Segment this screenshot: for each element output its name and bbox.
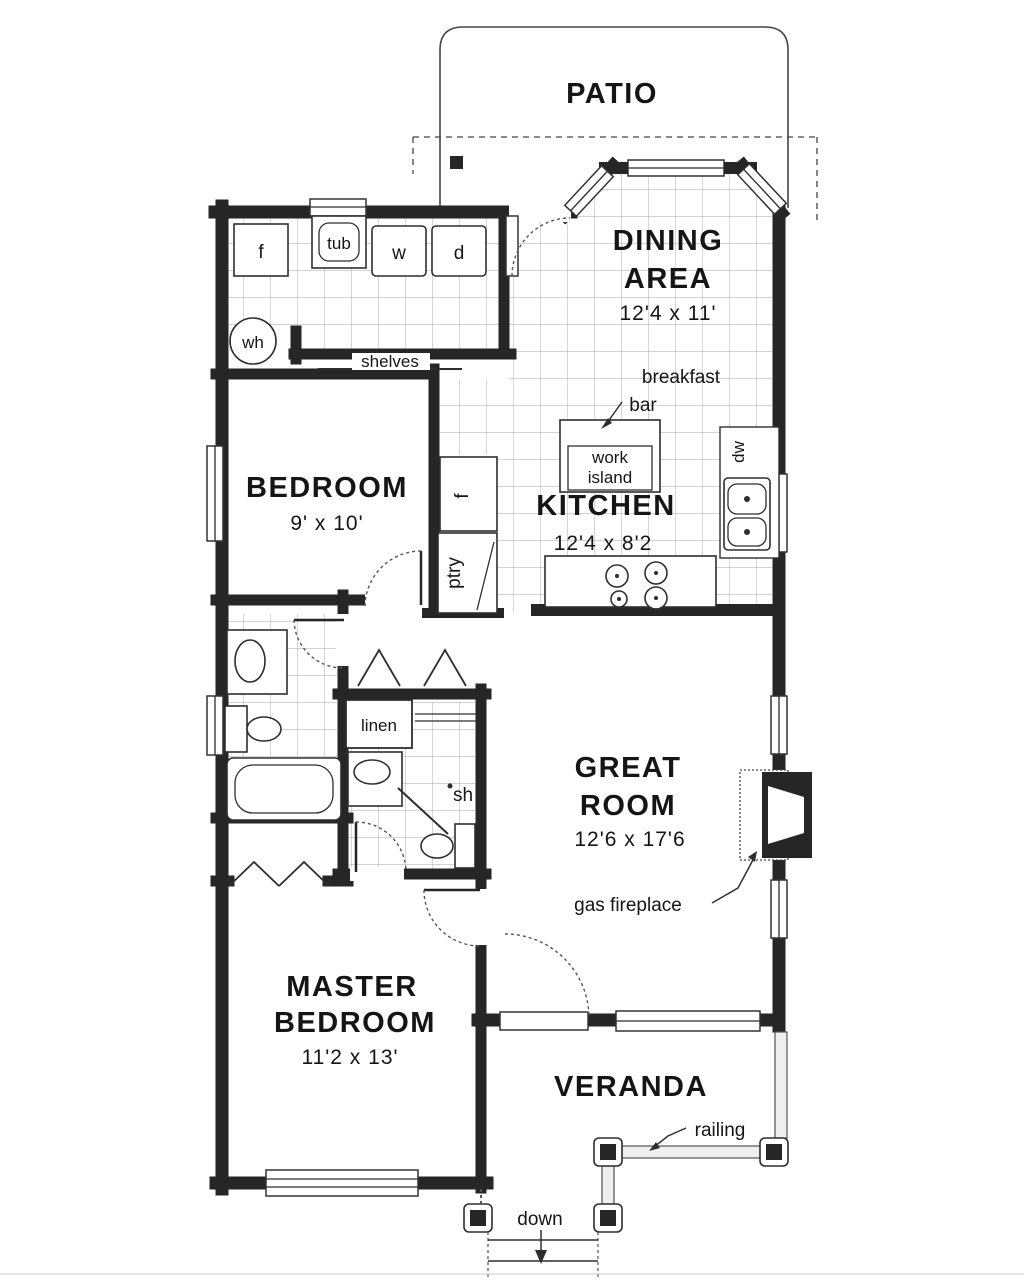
post-1-inner <box>600 1144 616 1160</box>
floor-plan-page: PATIO <box>0 0 1024 1280</box>
laundry-tub-label: tub <box>327 234 351 253</box>
room-dims-bedroom: 9' x 10' <box>290 512 363 535</box>
shower-head-dot <box>448 784 453 789</box>
room-label-bedroom: BEDROOM <box>246 472 408 504</box>
room-label-greatroom-2: ROOM <box>580 790 676 822</box>
fireplace <box>740 770 812 860</box>
pantry-label: ptry <box>444 557 465 589</box>
bath1-door-opening <box>336 614 350 666</box>
bath1-toilet-tank <box>225 706 247 752</box>
room-label-master-2: BEDROOM <box>274 1007 436 1039</box>
range-box <box>545 556 716 607</box>
patio-post-marker <box>450 156 463 169</box>
bath2-sink <box>354 760 390 784</box>
water-heater-label: wh <box>241 333 264 352</box>
room-label-master-1: MASTER <box>286 971 417 1003</box>
linen-label: linen <box>361 716 397 735</box>
bath1-sink <box>235 640 265 682</box>
room-label-dining-2: AREA <box>624 263 712 295</box>
burner-3-dot <box>617 597 621 601</box>
burner-2-dot <box>654 571 658 575</box>
background <box>0 0 1024 1280</box>
bath2-door-opening <box>350 867 404 881</box>
burner-1-dot <box>615 574 619 578</box>
work-island-label-2: island <box>588 468 632 487</box>
down-label: down <box>517 1209 562 1230</box>
shelves-label: shelves <box>361 352 419 371</box>
breakfast-bar-label-2: bar <box>629 395 657 416</box>
post-3-inner <box>470 1210 486 1226</box>
sink-drain-1 <box>744 496 750 502</box>
railing-right <box>775 1032 787 1138</box>
room-label-greatroom-1: GREAT <box>575 752 682 784</box>
breakfast-bar-label-1: breakfast <box>642 367 721 388</box>
gas-fireplace-label: gas fireplace <box>574 895 682 916</box>
room-label-kitchen: KITCHEN <box>536 490 675 522</box>
room-dims-dining: 12'4 x 11' <box>619 302 716 325</box>
veranda-door-leaf <box>500 1012 588 1030</box>
room-dims-master: 11'2 x 13' <box>301 1046 398 1069</box>
burner-4-dot <box>654 596 658 600</box>
window-master-bedroom <box>266 1170 418 1196</box>
room-dims-kitchen: 12'4 x 8'2 <box>554 532 653 555</box>
shower-label: sh <box>453 785 473 806</box>
room-label-veranda: VERANDA <box>554 1071 708 1103</box>
floor-plan-drawing: PATIO <box>0 0 1024 1280</box>
dishwasher-label: dw <box>729 440 748 462</box>
room-label-dining-1: DINING <box>613 225 724 257</box>
post-4-inner <box>600 1210 616 1226</box>
refrigerator-label: f <box>452 493 473 499</box>
room-dims-greatroom: 12'6 x 17'6 <box>574 828 685 851</box>
master-door-opening <box>474 889 488 945</box>
work-island-label-1: work <box>591 448 628 467</box>
freezer-label: f <box>258 242 264 263</box>
bath2-toilet-tank <box>455 824 475 868</box>
washer-label: w <box>391 243 406 264</box>
bedroom-door-opening <box>365 593 423 607</box>
post-2-inner <box>766 1144 782 1160</box>
railing-horizontal <box>622 1146 760 1158</box>
room-label-patio: PATIO <box>566 78 658 110</box>
railing-label: railing <box>695 1120 746 1141</box>
bath2-toilet-bowl <box>421 834 453 858</box>
dryer-label: d <box>454 243 465 264</box>
bath1-toilet-bowl <box>247 717 281 741</box>
railing-vertical <box>602 1166 614 1204</box>
sink-drain-2 <box>744 529 750 535</box>
